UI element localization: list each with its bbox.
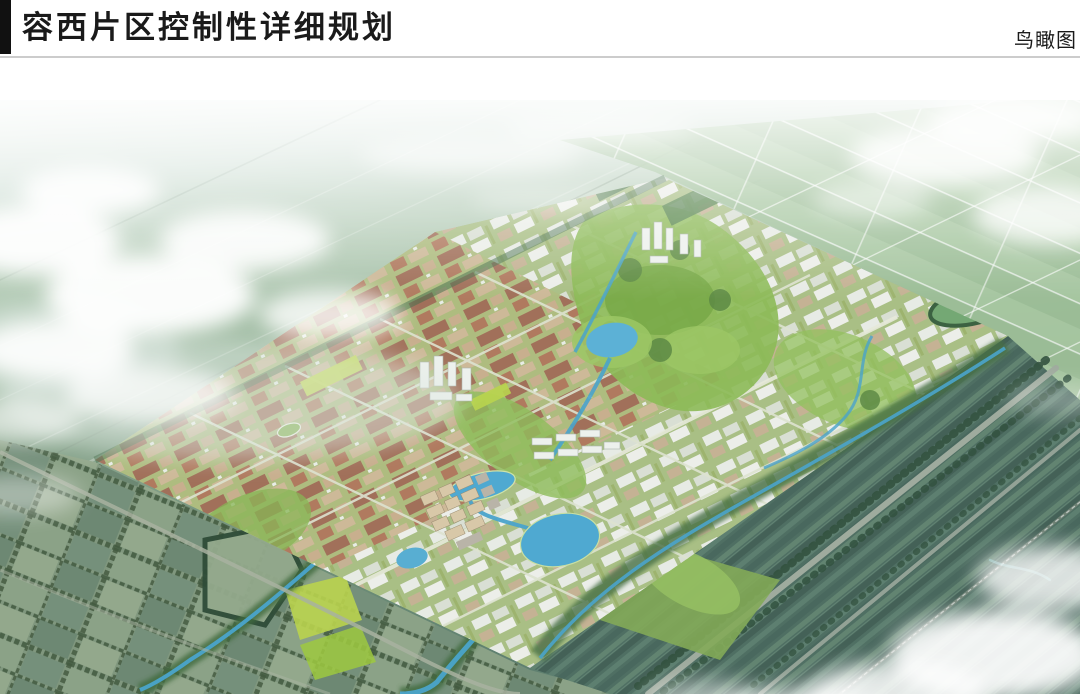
aerial-view-figure bbox=[0, 100, 1080, 694]
horizon-haze bbox=[0, 100, 1080, 300]
title-accent-bar bbox=[0, 0, 11, 54]
header: 容西片区控制性详细规划 鸟瞰图 bbox=[0, 0, 1080, 58]
page-title: 容西片区控制性详细规划 bbox=[22, 0, 396, 54]
header-divider bbox=[0, 56, 1080, 58]
aerial-rendering-image bbox=[0, 100, 1080, 694]
view-type-label: 鸟瞰图 bbox=[1014, 24, 1077, 53]
